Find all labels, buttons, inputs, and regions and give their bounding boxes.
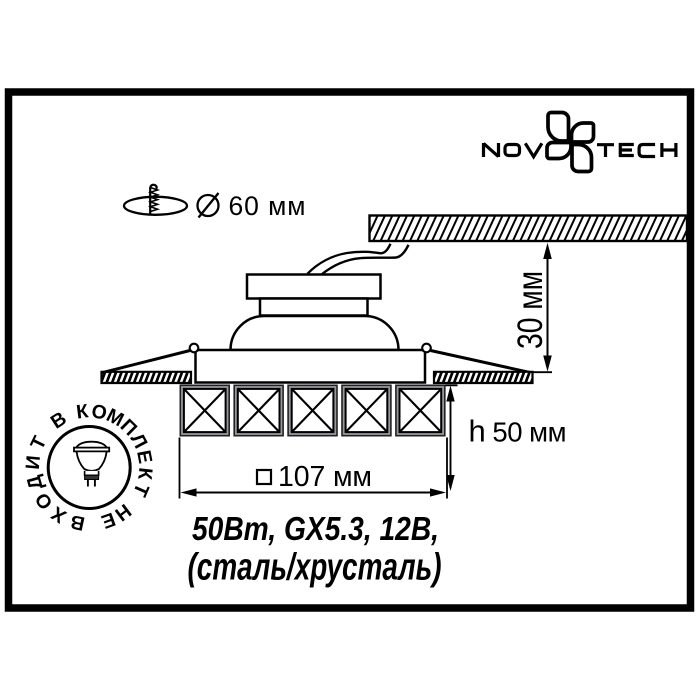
svg-text:К: К — [133, 466, 156, 480]
svg-text:60 мм: 60 мм — [229, 191, 306, 221]
svg-text:И: И — [22, 454, 45, 470]
svg-text:В: В — [68, 510, 86, 534]
svg-text:50Вт, GX5.3, 12В,: 50Вт, GX5.3, 12В, — [192, 510, 439, 547]
svg-text:30 мм: 30 мм — [511, 271, 550, 349]
svg-text:Т: Т — [26, 433, 51, 453]
svg-text:О: О — [31, 488, 58, 513]
svg-text:(сталь/хрусталь): (сталь/хрусталь) — [188, 547, 442, 589]
svg-text:Е: Е — [132, 448, 156, 465]
svg-text:h 50 мм: h 50 мм — [469, 414, 567, 449]
svg-text:Т: Т — [128, 480, 153, 500]
svg-text:В: В — [47, 408, 71, 434]
svg-text:107 мм: 107 мм — [278, 461, 372, 493]
svg-text:Д: Д — [23, 473, 48, 492]
svg-text:К: К — [75, 400, 90, 423]
